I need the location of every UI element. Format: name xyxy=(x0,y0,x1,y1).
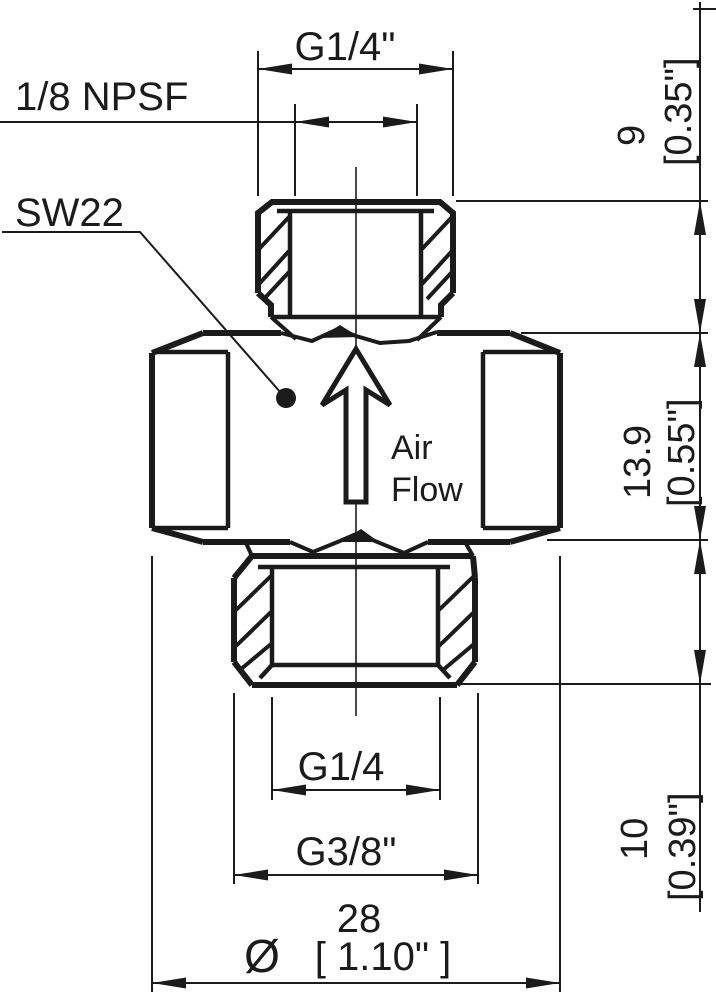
bottom-threaded-fitting xyxy=(234,556,475,685)
dim-body-width-inch: [ 1.10" ] xyxy=(315,935,452,979)
diameter-symbol: Ø xyxy=(244,930,280,982)
dim-right-bottom-inch: [0.39"] xyxy=(662,792,704,901)
air-flow-arrow xyxy=(322,349,390,502)
dim-right-top-mm: 9 xyxy=(611,125,653,146)
pneumatic-fitting-drawing: G1/4" 1/8 NPSF SW22 Air Flow 9 [0.35"] 1… xyxy=(0,0,716,1000)
dim-label-bottom-thread-outer: G3/8" xyxy=(296,830,397,874)
dim-right-bottom-mm: 10 xyxy=(614,818,656,860)
dim-right-middle-mm: 13.9 xyxy=(617,425,659,499)
label-inner-thread: 1/8 NPSF xyxy=(15,75,188,119)
label-air-flow-line2: Flow xyxy=(391,471,463,509)
dim-right-middle-inch: [0.55"] xyxy=(661,398,703,507)
sw22-marker-dot xyxy=(276,388,296,408)
technical-drawing-page: G1/4" 1/8 NPSF SW22 Air Flow 9 [0.35"] 1… xyxy=(0,0,716,1000)
bottom-fitting-inner-edges xyxy=(258,567,450,678)
dim-label-bottom-thread-inner: G1/4 xyxy=(298,745,385,789)
dim-right-top-inch: [0.35"] xyxy=(658,57,700,166)
sw22-leader-line xyxy=(2,232,281,393)
label-air-flow-line1: Air xyxy=(391,429,433,467)
label-wrench-size: SW22 xyxy=(15,191,124,235)
dim-label-top-thread: G1/4" xyxy=(295,25,396,69)
